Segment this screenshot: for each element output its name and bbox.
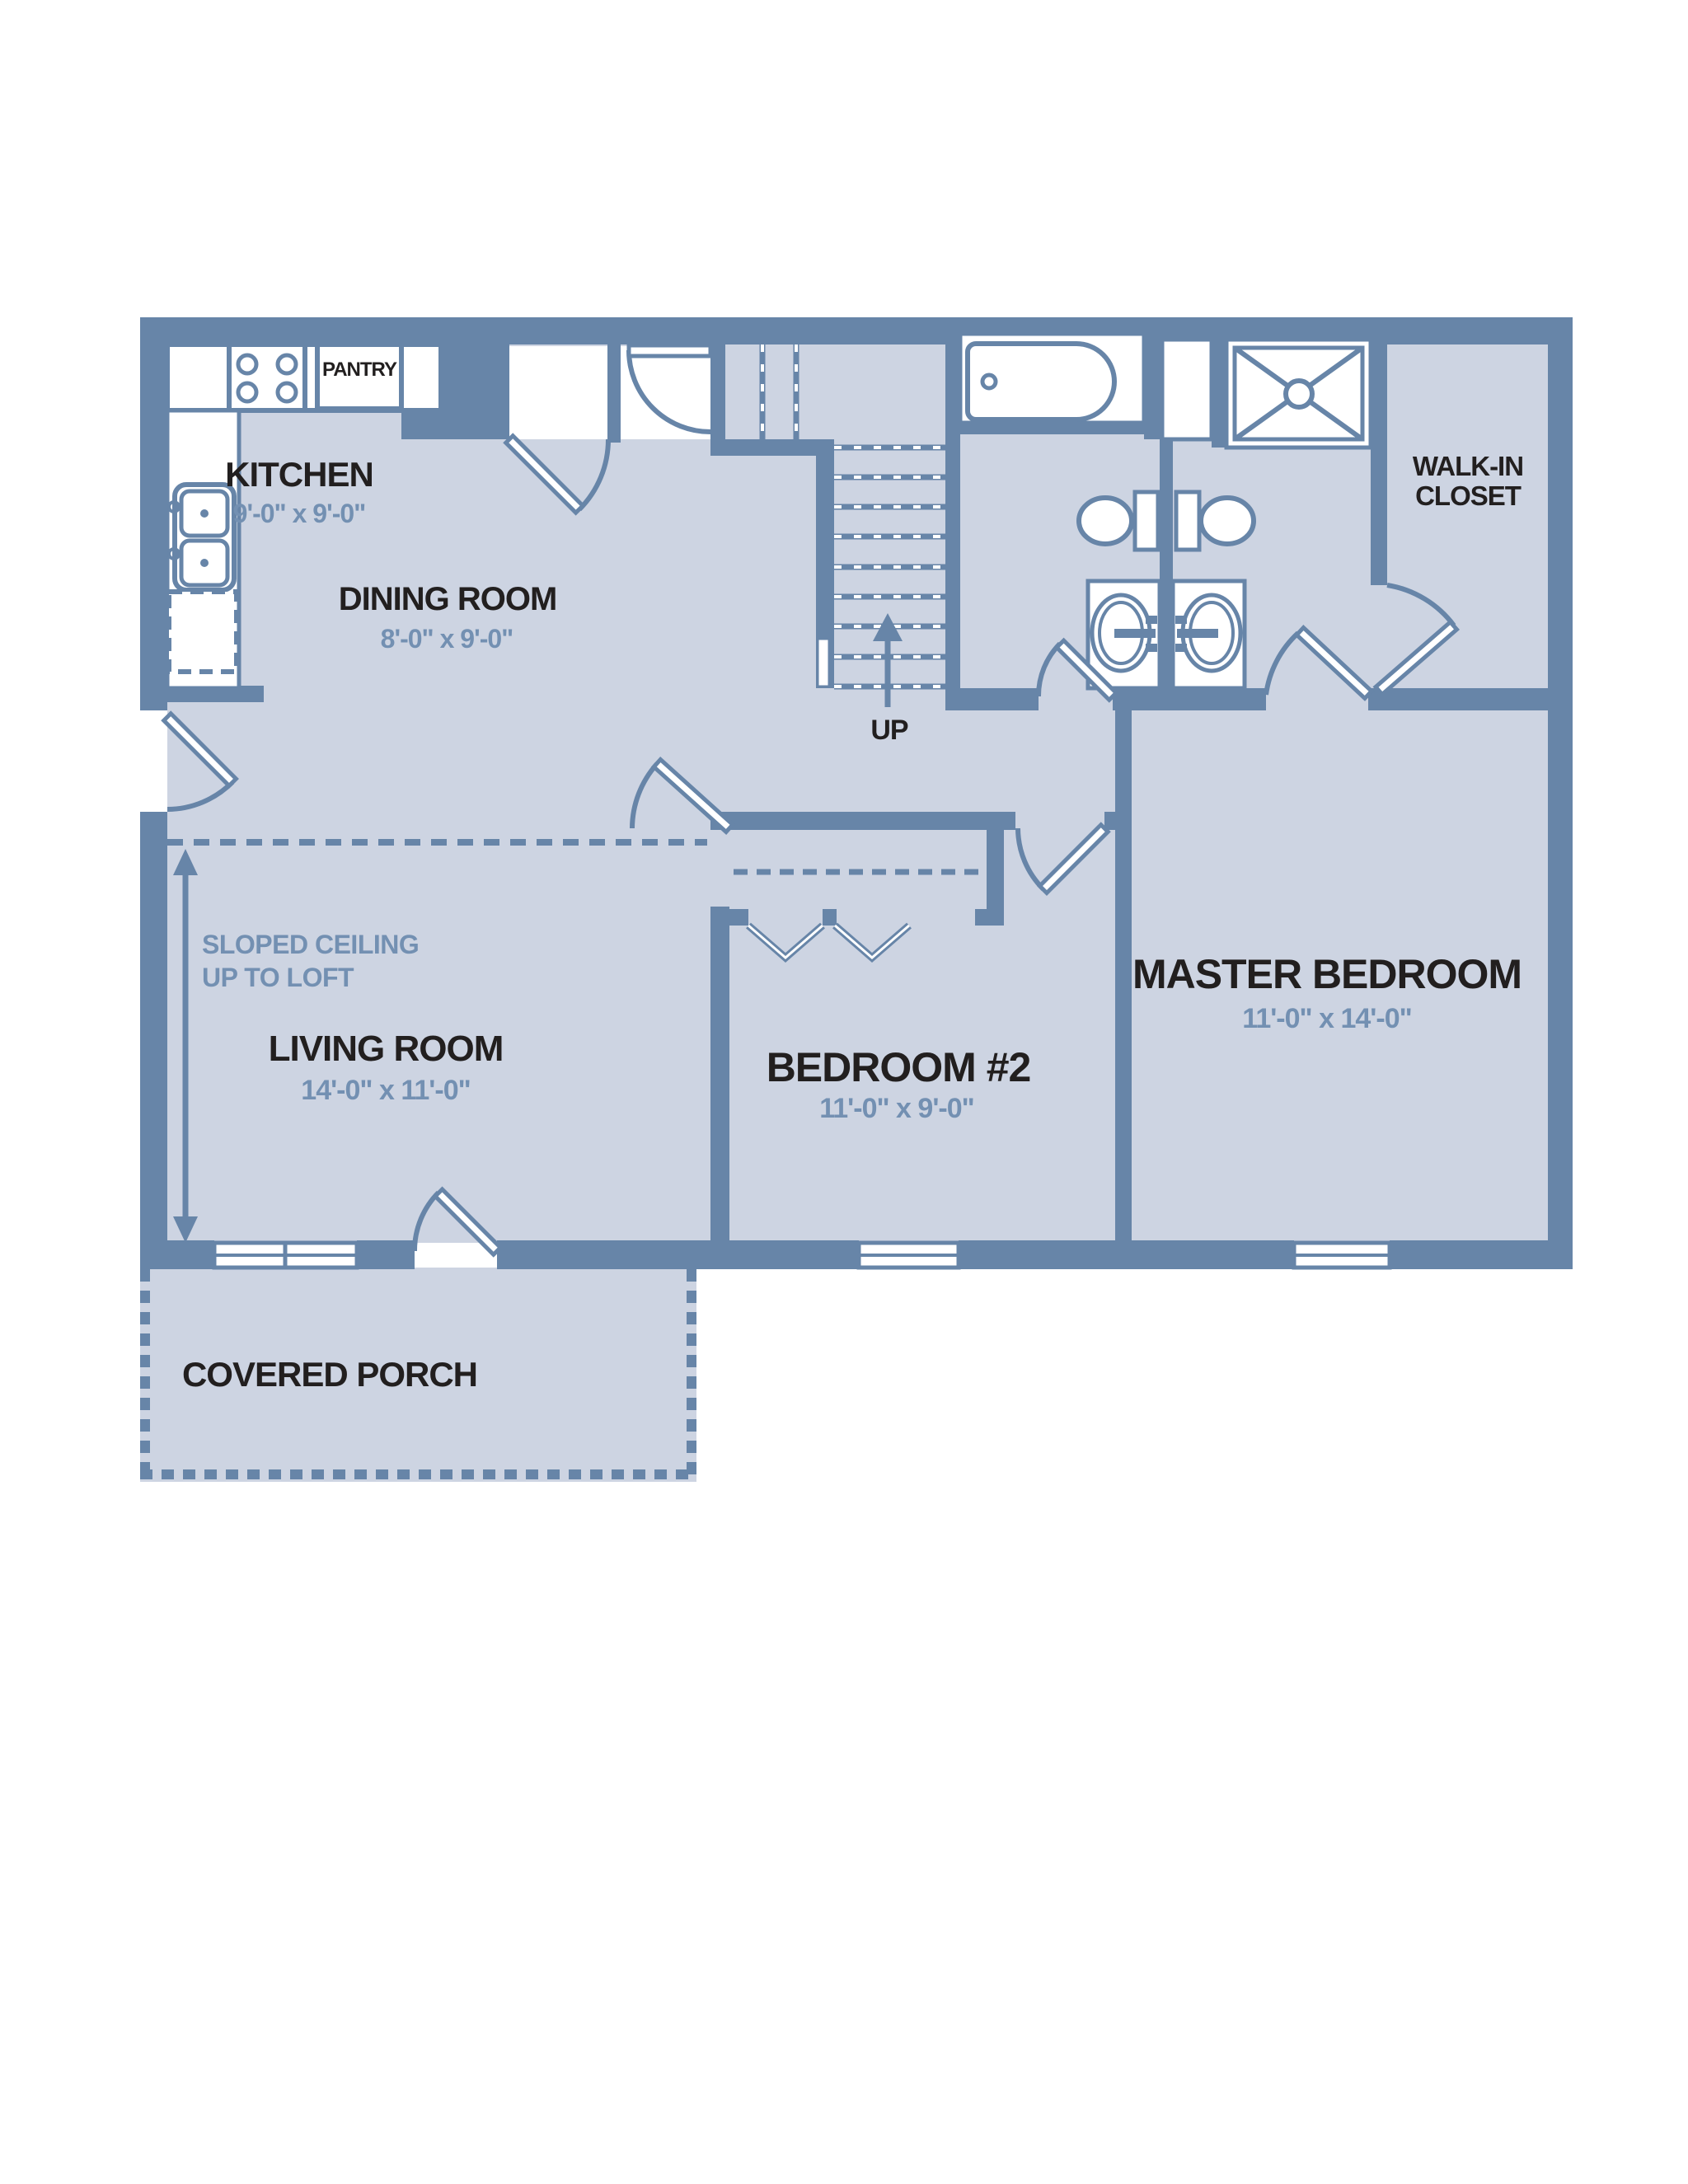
sloped-ceiling-note-1: SLOPED CEILING <box>202 930 419 959</box>
wall-bedroom-divider <box>1115 688 1132 1269</box>
wall-hallbath-west <box>945 334 960 710</box>
master-bedroom-dims: 11'-0" x 14'-0" <box>1242 1003 1411 1034</box>
wall-left-upper <box>140 317 167 710</box>
window-living <box>214 1243 357 1268</box>
toilet-master-icon <box>1176 492 1254 550</box>
wall-entry-stub <box>607 344 621 443</box>
opening-entry-a <box>509 346 607 439</box>
walk-in-closet-label-2: CLOSET <box>1415 480 1522 511</box>
floor-plan-canvas: UP <box>0 0 1688 2184</box>
range-stove-icon <box>229 344 305 410</box>
bedroom2-dims: 11'-0" x 9'-0" <box>819 1093 974 1124</box>
wall-bed2-closet-stub-mid <box>823 909 837 926</box>
wall-right <box>1548 317 1573 1269</box>
wall-closet-west <box>1371 340 1387 585</box>
walk-in-closet-label-1: WALK-IN <box>1413 451 1523 481</box>
wall-left-lower <box>140 812 167 1269</box>
refrigerator-icon <box>169 592 237 672</box>
master-bedroom-label: MASTER BEDROOM <box>1132 951 1522 997</box>
wall-bottom-1 <box>140 1240 214 1269</box>
wall-stairhall-left <box>710 344 725 456</box>
vanity-sink-master-icon <box>1173 581 1245 688</box>
vanity-sink-hall-icon <box>1088 581 1160 688</box>
covered-porch-label: COVERED PORCH <box>182 1355 477 1394</box>
wall-bath-south-2 <box>1113 688 1266 710</box>
wall-bed2-closet-step <box>975 909 1004 926</box>
wall-stair-closet-bottom <box>710 439 831 456</box>
dining-room-label: DINING ROOM <box>339 581 557 617</box>
window-master <box>1294 1243 1390 1268</box>
wall-bedroom2-west <box>710 907 729 1269</box>
wall-bath-south-1 <box>960 688 1039 710</box>
shower-icon <box>1226 340 1371 448</box>
linen-closet <box>1162 340 1212 439</box>
sloped-ceiling-note-2: UP TO LOFT <box>202 963 354 992</box>
toilet-hall-icon <box>1079 492 1158 550</box>
living-room-dims: 14'-0" x 11'-0" <box>301 1075 470 1106</box>
living-room-label: LIVING ROOM <box>269 1029 504 1069</box>
wall-bottom-3 <box>497 1240 859 1269</box>
wall-bed2-closet-stub-left <box>729 909 748 926</box>
wall-hall-south <box>710 812 1015 830</box>
opening-entry-b <box>621 346 710 439</box>
dining-room-dims: 8'-0" x 9'-0" <box>381 624 513 654</box>
floor-plan-page: UP <box>0 0 1688 2184</box>
window-bedroom2 <box>859 1243 959 1268</box>
stair-handrail <box>818 639 829 687</box>
pantry-label: PANTRY <box>322 359 397 381</box>
bathtub-icon <box>960 334 1144 423</box>
bedroom2-label: BEDROOM #2 <box>767 1044 1031 1090</box>
wall-bottom-2 <box>357 1240 415 1269</box>
wall-bottom-5 <box>1390 1240 1573 1269</box>
stairs-up-label: UP <box>870 715 908 746</box>
kitchen-dims: 9'-0" x 9'-0" <box>233 499 366 528</box>
opening-side-door <box>140 710 167 812</box>
wall-bath-south-3 <box>1368 688 1573 710</box>
kitchen-label: KITCHEN <box>225 455 373 494</box>
